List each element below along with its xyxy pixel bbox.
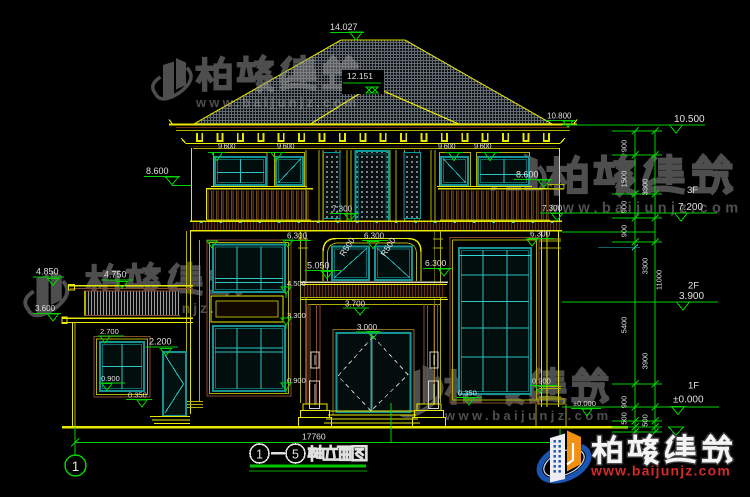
svg-text:500: 500 <box>620 412 629 425</box>
svg-text:3.700: 3.700 <box>345 300 366 309</box>
svg-text:14.027: 14.027 <box>330 22 358 32</box>
svg-text:2.200: 2.200 <box>149 337 172 347</box>
svg-text:3300: 3300 <box>641 258 650 275</box>
svg-text:8.600: 8.600 <box>516 170 539 180</box>
svg-text:7.300: 7.300 <box>542 204 563 213</box>
svg-text:0.900: 0.900 <box>101 374 120 383</box>
svg-text:5.050: 5.050 <box>307 261 330 271</box>
svg-text:2F: 2F <box>688 281 699 292</box>
svg-text:8.600: 8.600 <box>146 166 169 176</box>
svg-text:900: 900 <box>620 201 629 214</box>
svg-text:3.600: 3.600 <box>35 304 56 313</box>
svg-text:7.300: 7.300 <box>332 205 353 214</box>
svg-text:1: 1 <box>72 459 80 474</box>
svg-text:9 600: 9 600 <box>474 142 491 151</box>
svg-text:2.700: 2.700 <box>100 327 119 336</box>
svg-text:1: 1 <box>256 448 263 462</box>
svg-text:3900: 3900 <box>641 353 650 370</box>
svg-text:900: 900 <box>620 140 629 153</box>
svg-text:10.500: 10.500 <box>674 114 705 125</box>
svg-text:3.300: 3.300 <box>287 311 306 320</box>
svg-text:6.300: 6.300 <box>287 232 308 241</box>
svg-text:www.baijunjz.com: www.baijunjz.com <box>546 201 743 217</box>
svg-text:0.350: 0.350 <box>128 391 147 400</box>
svg-text:3.900: 3.900 <box>679 291 704 302</box>
svg-text:3300: 3300 <box>641 179 650 196</box>
svg-text:9 600: 9 600 <box>277 142 294 151</box>
svg-text:www.baijunjz.com: www.baijunjz.com <box>195 95 359 110</box>
svg-text:4.850: 4.850 <box>36 267 59 277</box>
svg-text:900: 900 <box>620 396 629 409</box>
svg-text:1F: 1F <box>688 381 699 392</box>
svg-text:500: 500 <box>641 414 650 427</box>
svg-text:1500: 1500 <box>620 171 629 188</box>
svg-text:6.300: 6.300 <box>530 230 551 239</box>
svg-text:0.900: 0.900 <box>287 376 306 385</box>
svg-text:11000: 11000 <box>655 270 664 290</box>
svg-text:4.750: 4.750 <box>104 270 127 280</box>
svg-text:www.baijunjz.com: www.baijunjz.com <box>590 463 731 479</box>
svg-text:6.300: 6.300 <box>425 258 447 268</box>
svg-text:0.350: 0.350 <box>458 389 477 398</box>
svg-text:12.151: 12.151 <box>347 71 373 81</box>
svg-text:7.200: 7.200 <box>678 202 703 213</box>
svg-text:5: 5 <box>292 448 299 462</box>
svg-text:900: 900 <box>620 225 629 238</box>
svg-text:0.900: 0.900 <box>532 377 551 386</box>
svg-text:17760: 17760 <box>302 432 326 442</box>
svg-text:3F: 3F <box>687 185 698 196</box>
svg-text:10.800: 10.800 <box>547 112 572 121</box>
svg-text:5400: 5400 <box>620 317 629 334</box>
svg-text:±0.000: ±0.000 <box>673 395 704 406</box>
svg-text:6.300: 6.300 <box>364 232 385 241</box>
svg-text:3.000: 3.000 <box>357 323 378 332</box>
svg-text:9 600: 9 600 <box>218 142 235 151</box>
svg-text:9 600: 9 600 <box>438 142 455 151</box>
